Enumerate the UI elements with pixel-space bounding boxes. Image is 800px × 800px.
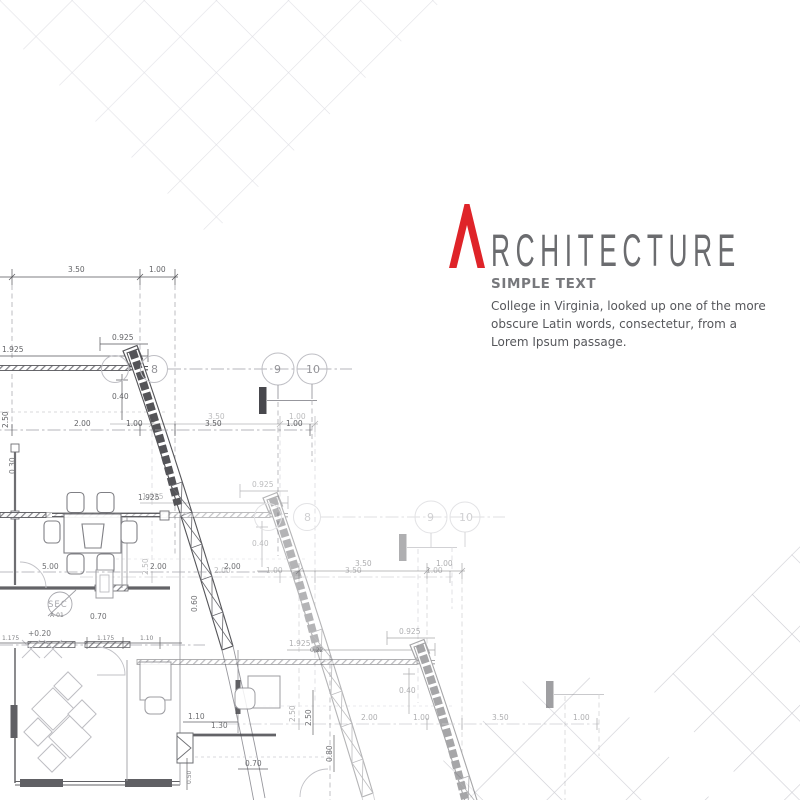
dim-label: 0.70 [90,612,107,621]
section-ref: A-01 [50,612,64,619]
dim-label: 0.50 [186,770,193,784]
brand-subtitle: SIMPLE TEXT [491,276,596,292]
dim-label: 1.925 [138,493,160,502]
dim-label: 2.00 [224,562,241,571]
dim-label: 2.50 [304,709,313,726]
dim-label: 0.22 [310,647,324,654]
dim-label: 0.80 [325,745,334,762]
dim-label: 5.00 [42,562,59,571]
floor-plan: SEC A-01 5.00 2.00 2.00 0.30 1.925 0.60 … [0,444,334,800]
brand-title: RCHITECTURE [491,233,741,270]
dim-label: 0.30 [8,457,17,474]
diamond-pattern-top-left [0,0,500,300]
dim-label: 1.175 [97,635,114,642]
dim-label: 1.10 [140,635,154,642]
dim-label: 2.00 [150,562,167,571]
brand-letter-a-icon [446,201,488,269]
dim-label: 1.10 [188,712,205,721]
dim-label: 0.60 [190,595,199,612]
diamond-tables [24,672,96,772]
dim-label: 1.30 [211,721,228,730]
brand-body-text: College in Virginia, looked up one of th… [491,297,767,351]
dim-label: +0.20 [28,629,51,638]
dim-label: 0.70 [245,759,262,768]
blueprint-canvas: 3.50 1.00 1.925 0.925 0.40 2.50 [0,0,800,800]
dim-label: 1.175 [2,635,19,642]
desk [140,662,280,714]
section-label: SEC [48,600,68,610]
poster: 3.50 1.00 1.925 0.925 0.40 2.50 [0,0,800,800]
